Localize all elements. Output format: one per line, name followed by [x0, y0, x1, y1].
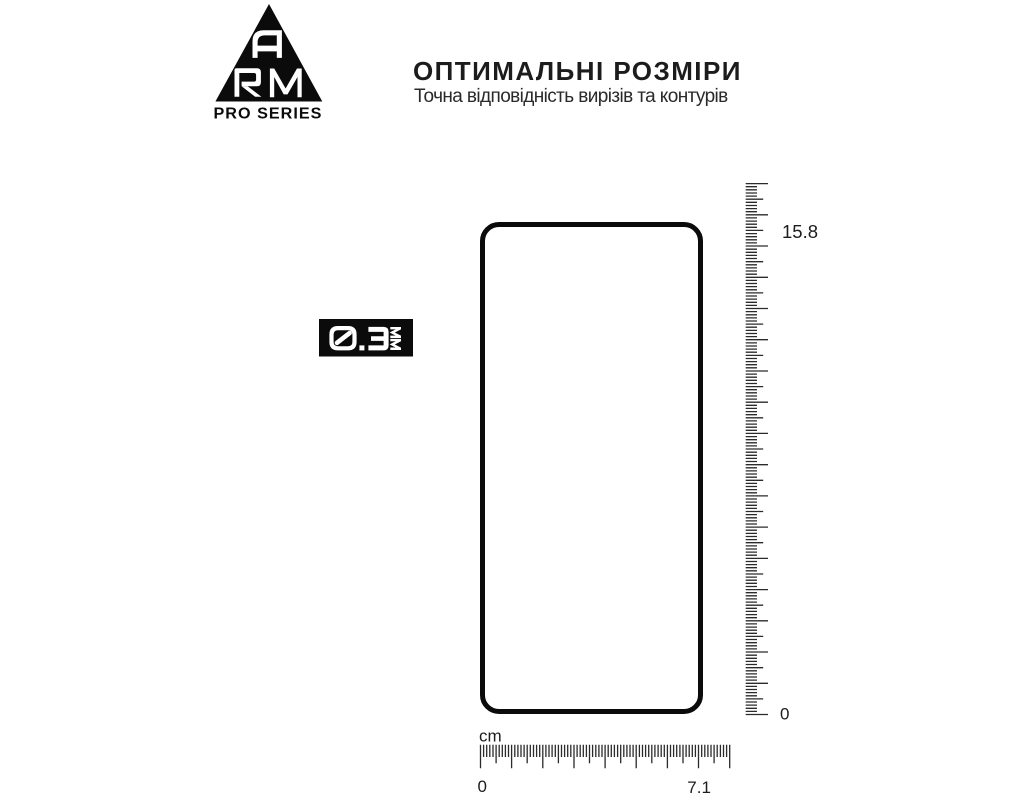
svg-text:PRO SERIES: PRO SERIES	[214, 106, 323, 123]
svg-text:cm: cm	[479, 727, 502, 746]
svg-text:0: 0	[478, 777, 487, 796]
svg-text:0: 0	[780, 705, 789, 724]
svg-text:7.1: 7.1	[687, 778, 711, 797]
svg-text:15.8: 15.8	[782, 221, 818, 242]
